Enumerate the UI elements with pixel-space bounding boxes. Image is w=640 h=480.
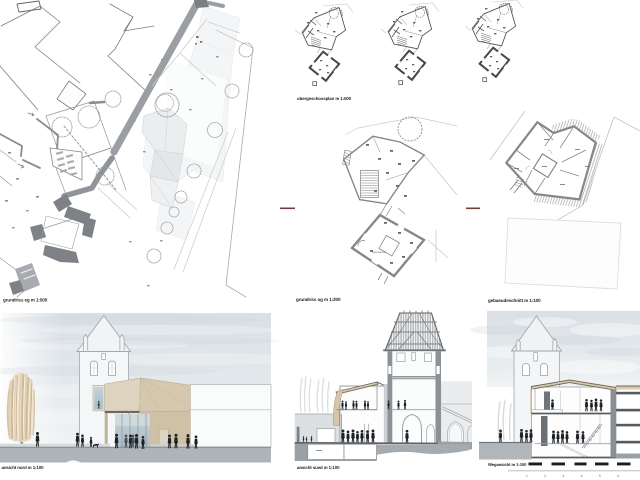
svg-text:foyer kasse: foyer kasse bbox=[372, 251, 386, 254]
svg-text:obergeschossplan m 1:500: obergeschossplan m 1:500 bbox=[297, 96, 352, 101]
svg-text:grundriss og m 1:200: grundriss og m 1:200 bbox=[296, 297, 341, 302]
svg-text:ansicht sued m 1:100: ansicht sued m 1:100 bbox=[297, 465, 340, 470]
svg-text:gebaeudeschnitt m 1:100: gebaeudeschnitt m 1:100 bbox=[488, 298, 541, 303]
svg-text:1 2 3 4 5 6: 1 2 3 4 5 6 bbox=[526, 474, 627, 478]
svg-text:ansicht nord m 1:100: ansicht nord m 1:100 bbox=[2, 465, 45, 470]
svg-text:Wegansicht m 1:100: Wegansicht m 1:100 bbox=[488, 462, 527, 467]
svg-text:grundriss eg m 1:500: grundriss eg m 1:500 bbox=[3, 298, 48, 303]
